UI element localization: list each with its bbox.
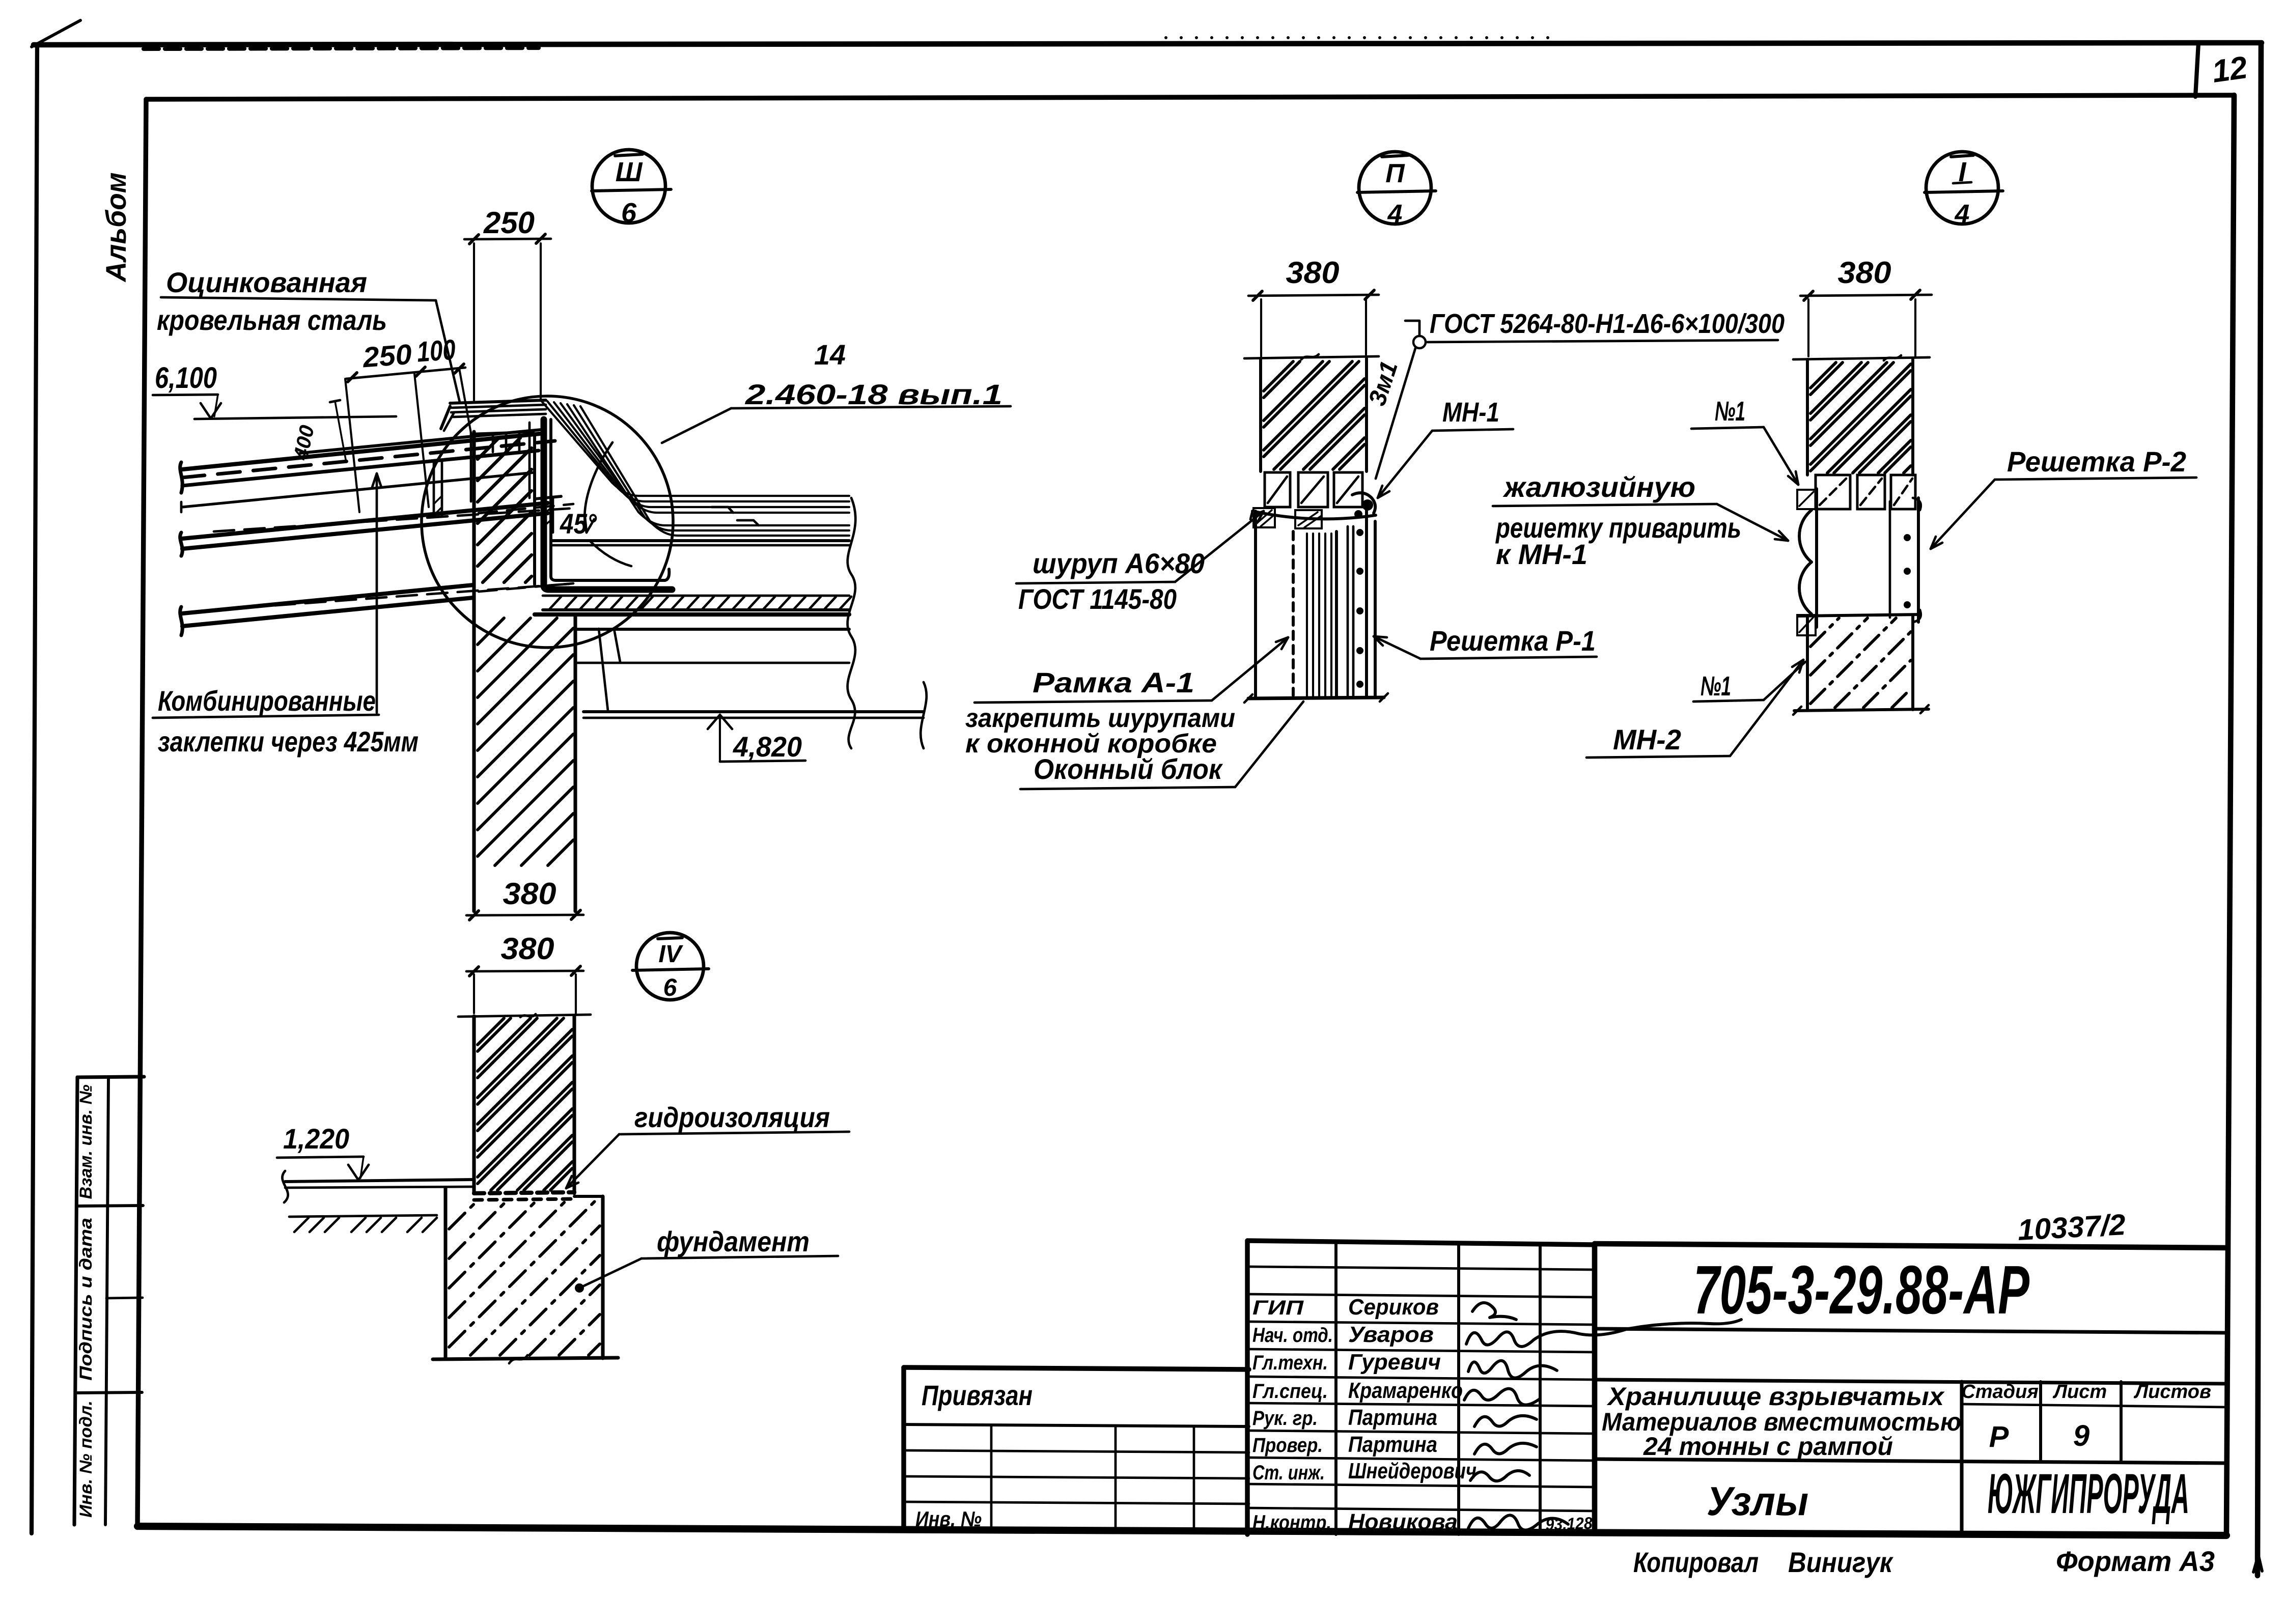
svg-text:Нач. отд.: Нач. отд. bbox=[1252, 1324, 1333, 1347]
svg-text:ЮЖГИПРОРУДА: ЮЖГИПРОРУДА bbox=[1988, 1463, 2189, 1525]
svg-text:250: 250 bbox=[361, 338, 413, 374]
svg-text:6: 6 bbox=[663, 974, 677, 1001]
svg-text:Взам. инв. №: Взам. инв. № bbox=[76, 1084, 96, 1199]
svg-text:заклепки через 425мм: заклепки через 425мм bbox=[158, 725, 419, 758]
svg-text:Гл.техн.: Гл.техн. bbox=[1252, 1352, 1328, 1374]
svg-text:24 тонны с рампой: 24 тонны с рампой bbox=[1643, 1432, 1893, 1461]
svg-text:Винигук: Винигук bbox=[1788, 1546, 1893, 1578]
svg-text:Ст. инж.: Ст. инж. bbox=[1252, 1462, 1325, 1484]
svg-text:№1: №1 bbox=[1701, 671, 1731, 702]
svg-text:Комбинированные: Комбинированные bbox=[158, 685, 376, 717]
svg-text:100: 100 bbox=[416, 333, 457, 368]
svg-text:9: 9 bbox=[2073, 1419, 2089, 1452]
svg-text:гидроизоляция: гидроизоляция bbox=[634, 1101, 830, 1133]
svg-text:Н.контр.: Н.контр. bbox=[1252, 1511, 1331, 1534]
svg-text:6,100: 6,100 bbox=[155, 361, 217, 395]
svg-text:Привязан: Привязан bbox=[922, 1379, 1033, 1411]
svg-text:250: 250 bbox=[483, 206, 535, 240]
svg-text:П: П bbox=[1385, 159, 1405, 188]
svg-text:Альбом: Альбом bbox=[100, 173, 132, 283]
svg-text:Партина: Партина bbox=[1348, 1432, 1437, 1457]
svg-text:380: 380 bbox=[1838, 256, 1891, 290]
svg-text:Оконный блок: Оконный блок bbox=[1034, 753, 1223, 785]
svg-text:ГИП: ГИП bbox=[1252, 1297, 1304, 1319]
svg-text:1,220: 1,220 bbox=[283, 1123, 349, 1155]
svg-text:Новикова: Новикова bbox=[1348, 1509, 1458, 1534]
svg-text:Гуревич: Гуревич bbox=[1348, 1350, 1441, 1375]
svg-text:380: 380 bbox=[503, 877, 556, 911]
svg-text:ГОСТ 5264-80-Н1-Δ6-6×100/300: ГОСТ 5264-80-Н1-Δ6-6×100/300 bbox=[1430, 309, 1785, 339]
svg-text:Шнейдерович: Шнейдерович bbox=[1348, 1459, 1476, 1483]
svg-text:Провер.: Провер. bbox=[1252, 1434, 1323, 1457]
svg-text:Р: Р bbox=[1989, 1420, 2009, 1453]
svg-text:Гл.спец.: Гл.спец. bbox=[1252, 1380, 1328, 1403]
svg-text:Лист: Лист bbox=[2052, 1381, 2107, 1403]
svg-text:Решетка Р-1: Решетка Р-1 bbox=[1430, 625, 1596, 657]
svg-text:4: 4 bbox=[1955, 200, 1970, 229]
svg-text:Инв. № подл.: Инв. № подл. bbox=[76, 1401, 96, 1518]
svg-text:ГОСТ 1145-80: ГОСТ 1145-80 bbox=[1018, 583, 1177, 615]
svg-text:МН-1: МН-1 bbox=[1442, 397, 1499, 428]
svg-text:6: 6 bbox=[621, 198, 637, 228]
svg-text:к МН-1: к МН-1 bbox=[1496, 538, 1587, 570]
svg-text:Рук. гр.: Рук. гр. bbox=[1252, 1407, 1318, 1430]
svg-text:фундамент: фундамент bbox=[657, 1225, 810, 1257]
svg-text:Подпись и дата: Подпись и дата bbox=[76, 1218, 96, 1381]
svg-text:Узлы: Узлы bbox=[1707, 1478, 1808, 1524]
svg-text:10337/2: 10337/2 bbox=[2017, 1208, 2126, 1247]
svg-text:№1: №1 bbox=[1715, 396, 1745, 427]
svg-text:380: 380 bbox=[501, 932, 554, 966]
svg-text:Уваров: Уваров bbox=[1348, 1322, 1434, 1347]
svg-text:Решетка Р-2: Решетка Р-2 bbox=[2007, 445, 2186, 478]
svg-text:14: 14 bbox=[814, 339, 846, 371]
svg-text:Копировал: Копировал bbox=[1633, 1546, 1759, 1578]
svg-text:Инв. №: Инв. № bbox=[915, 1507, 982, 1531]
svg-text:Листов: Листов bbox=[2133, 1381, 2211, 1403]
svg-text:Хранилище взрывчатых: Хранилище взрывчатых bbox=[1606, 1382, 1945, 1411]
svg-text:Рамка А-1: Рамка А-1 bbox=[1033, 666, 1194, 698]
svg-text:жалюзийную: жалюзийную bbox=[1502, 471, 1695, 503]
svg-text:Сериков: Сериков bbox=[1348, 1295, 1439, 1320]
svg-text:МН-2: МН-2 bbox=[1613, 723, 1681, 755]
svg-text:Оцинкованная: Оцинкованная bbox=[166, 266, 367, 298]
svg-text:IV: IV bbox=[658, 941, 683, 968]
svg-text:Ш: Ш bbox=[616, 157, 643, 187]
svg-text:шуруп А6×80: шуруп А6×80 bbox=[1033, 547, 1205, 579]
svg-text:Партина: Партина bbox=[1348, 1405, 1437, 1430]
svg-text:4,820: 4,820 bbox=[733, 731, 802, 763]
svg-text:Стадия: Стадия bbox=[1961, 1381, 2038, 1403]
svg-text:Крамаренко: Крамаренко bbox=[1348, 1378, 1463, 1403]
svg-text:кровельная сталь: кровельная сталь bbox=[157, 304, 387, 336]
svg-text:Формат А3: Формат А3 bbox=[2056, 1545, 2215, 1577]
svg-text:93.128: 93.128 bbox=[1545, 1514, 1593, 1534]
svg-text:12: 12 bbox=[2210, 50, 2249, 90]
svg-text:4: 4 bbox=[1387, 200, 1403, 229]
svg-text:380: 380 bbox=[1286, 256, 1340, 290]
svg-text:705-3-29.88-АР: 705-3-29.88-АР bbox=[1693, 1251, 2030, 1328]
